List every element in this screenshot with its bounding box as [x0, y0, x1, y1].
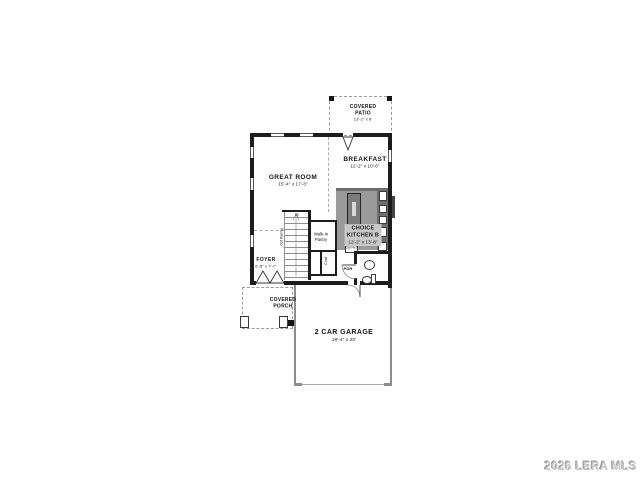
room-dim: 15'-4" x 17'-3"	[269, 182, 317, 188]
room-name: Coat	[324, 257, 329, 265]
covered-patio-label: COVERED PATIO 13'-2" x 8'	[349, 104, 377, 122]
great-room-label: GREAT ROOM 15'-4" x 17'-3"	[269, 173, 317, 187]
room-name: PDR	[344, 267, 353, 272]
room-name: CHOICE KITCHEN B	[347, 225, 380, 239]
room-name: FOYER	[255, 257, 276, 263]
stairs-up-label: Up	[295, 213, 299, 217]
floorplan-image: COVERED PATIO 13'-2" x 8' BREAKFAST 12'-…	[0, 0, 640, 480]
mls-watermark: 2026 LERA MLS	[545, 461, 637, 473]
patio-door-swing	[343, 137, 353, 150]
opt-railing-label: Opt Railing	[280, 228, 284, 245]
room-name: BREAKFAST	[343, 155, 386, 163]
room-dim: 13'-2" x 8'	[349, 117, 377, 122]
opt-ref-label: Opt Ref	[345, 246, 356, 250]
room-name: 2 CAR GARAGE	[315, 327, 373, 336]
room-dim: 12'-2" x 10'-6"	[343, 164, 386, 170]
garage-entry-door-arc	[348, 285, 360, 297]
room-dim: 6'-8" x 7'-7"	[255, 264, 276, 269]
covered-porch-label: COVERED PORCH	[269, 297, 297, 310]
front-door-leaf	[256, 271, 270, 283]
powder-room-label: PDR	[344, 267, 353, 272]
room-name: Walk-In Pantry	[312, 232, 330, 243]
room-name: COVERED PATIO	[349, 104, 377, 117]
front-door-leaf	[270, 271, 284, 283]
annotation-text: Opt Railing	[280, 228, 284, 245]
room-dim: 19'-4" x 20'	[315, 337, 373, 343]
kitchen-label: CHOICE KITCHEN B 12'-2" x 13'-8"	[345, 224, 382, 246]
room-name: COVERED PORCH	[269, 297, 297, 310]
pantry-label: Walk-In Pantry	[312, 232, 330, 243]
coat-closet-label: Coat	[324, 257, 329, 265]
breakfast-label: BREAKFAST 12'-2" x 10'-6"	[343, 155, 386, 169]
room-name: GREAT ROOM	[269, 173, 317, 181]
annotation-text: Opt Ref	[345, 246, 356, 250]
garage-label: 2 CAR GARAGE 19'-4" x 20'	[315, 327, 373, 342]
foyer-label: FOYER 6'-8" x 7'-7"	[255, 257, 276, 269]
annotation-text: Up	[295, 213, 299, 217]
room-dim: 12'-2" x 13'-8"	[347, 239, 380, 245]
